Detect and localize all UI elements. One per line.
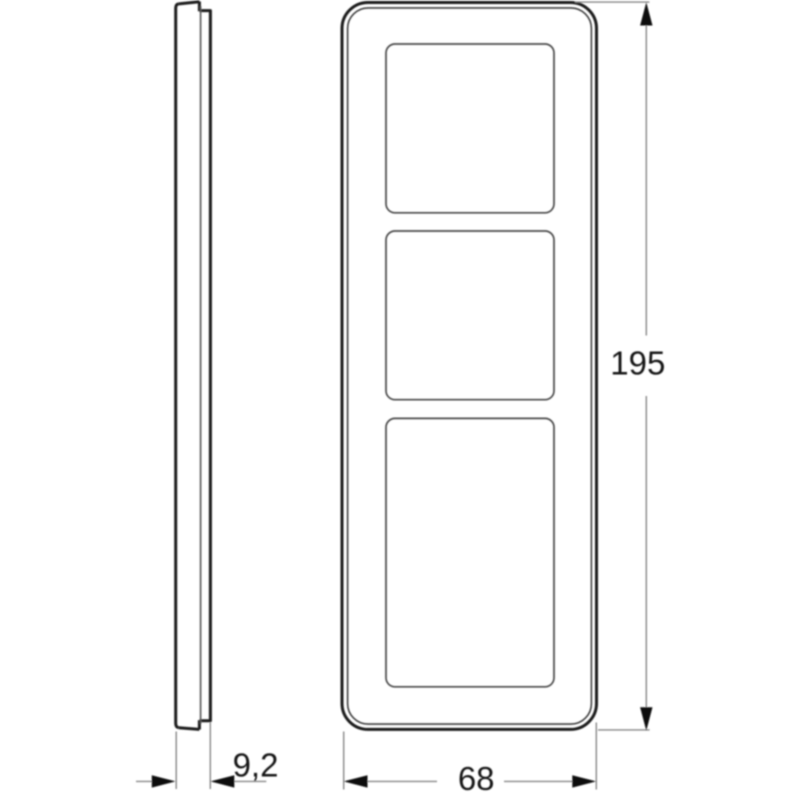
svg-text:195: 195 (610, 345, 665, 382)
svg-text:9,2: 9,2 (233, 746, 279, 783)
svg-text:68: 68 (458, 760, 495, 797)
